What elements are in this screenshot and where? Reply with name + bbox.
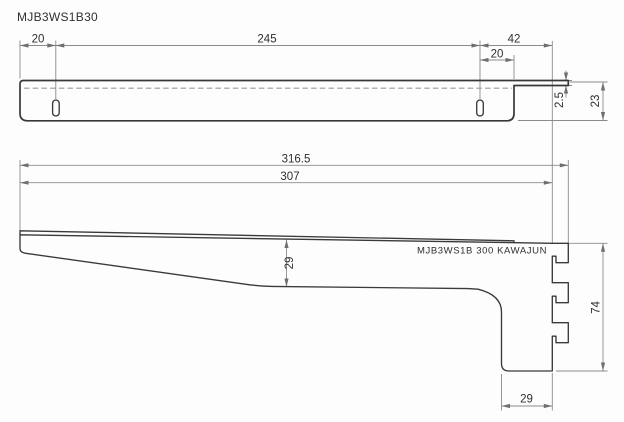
dim-plate-height: 74 (591, 301, 603, 314)
annotations: MJB3WS1B30 MJB3WS1B 300 KAWAJUN 20 245 4… (17, 10, 603, 406)
part-marking-label: MJB3WS1B 300 KAWAJUN (417, 246, 547, 257)
dim-edge-to-slot: 20 (32, 34, 45, 46)
dim-slot-to-hook-plate: 42 (508, 34, 521, 46)
dim-slot-to-bar-end: 20 (491, 49, 504, 61)
slot-hole-left (53, 100, 60, 116)
drawing-title: MJB3WS1B30 (17, 10, 98, 24)
dim-foot-depth: 29 (520, 394, 533, 406)
extension-lines (20, 41, 608, 411)
drawing-sheet: MJB3WS1B30 MJB3WS1B 300 KAWAJUN 20 245 4… (0, 0, 624, 422)
dim-arm-height: 29 (284, 257, 296, 270)
dim-bar-width: 23 (590, 95, 602, 108)
dimension-arrows (20, 43, 605, 408)
dim-slot-pitch: 245 (257, 34, 276, 46)
top-view (20, 81, 568, 121)
dimension-lines (20, 41, 608, 411)
technical-drawing: MJB3WS1B30 MJB3WS1B 300 KAWAJUN 20 245 4… (0, 0, 624, 422)
dim-length-to-plate: 307 (280, 171, 299, 183)
dim-plate-thickness: 2.5 (554, 92, 566, 108)
bar-outline (20, 81, 568, 121)
dim-overall-length: 316.5 (282, 154, 311, 166)
slot-hole-right (477, 100, 484, 116)
